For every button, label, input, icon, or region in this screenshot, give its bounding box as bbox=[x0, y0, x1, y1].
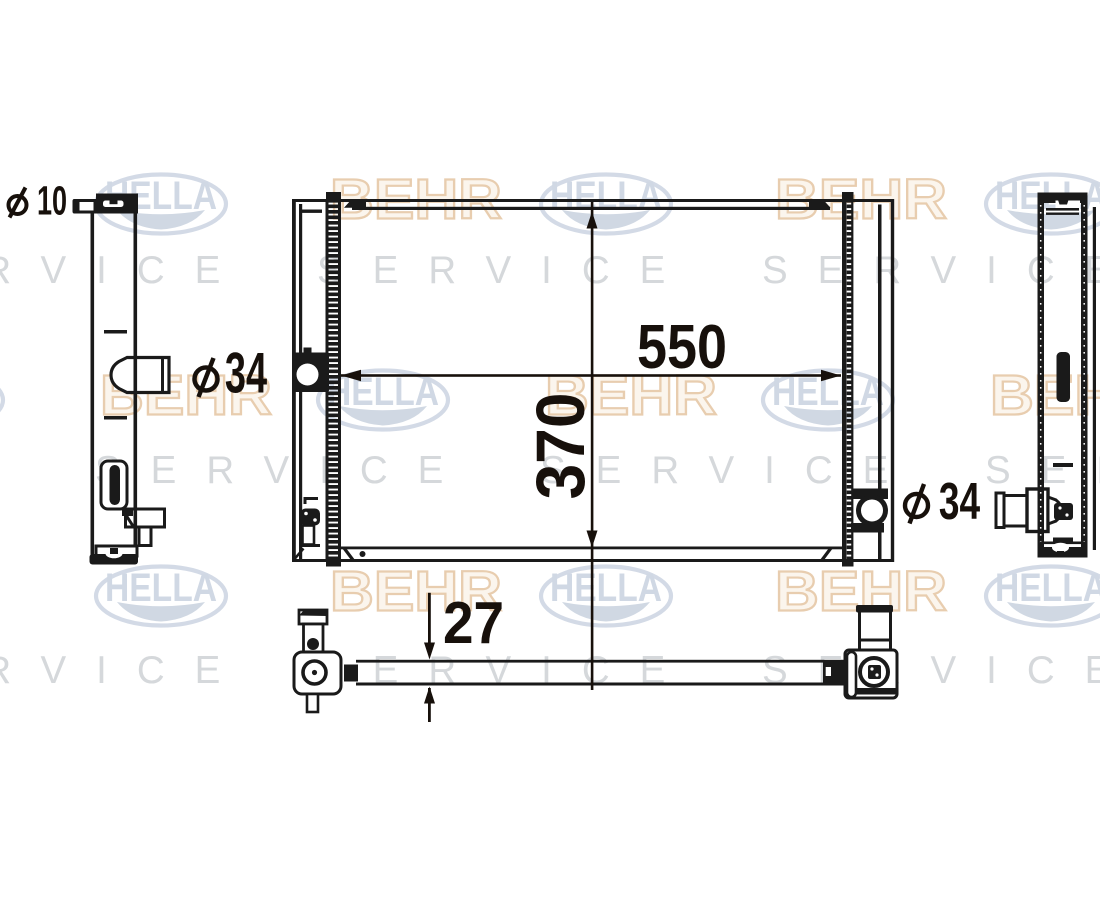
svg-text:370: 370 bbox=[523, 392, 600, 499]
svg-text:27: 27 bbox=[443, 590, 504, 656]
svg-text:10: 10 bbox=[37, 179, 67, 224]
svg-text:550: 550 bbox=[637, 313, 727, 382]
svg-text:34: 34 bbox=[225, 342, 267, 406]
svg-text:34: 34 bbox=[939, 472, 980, 531]
